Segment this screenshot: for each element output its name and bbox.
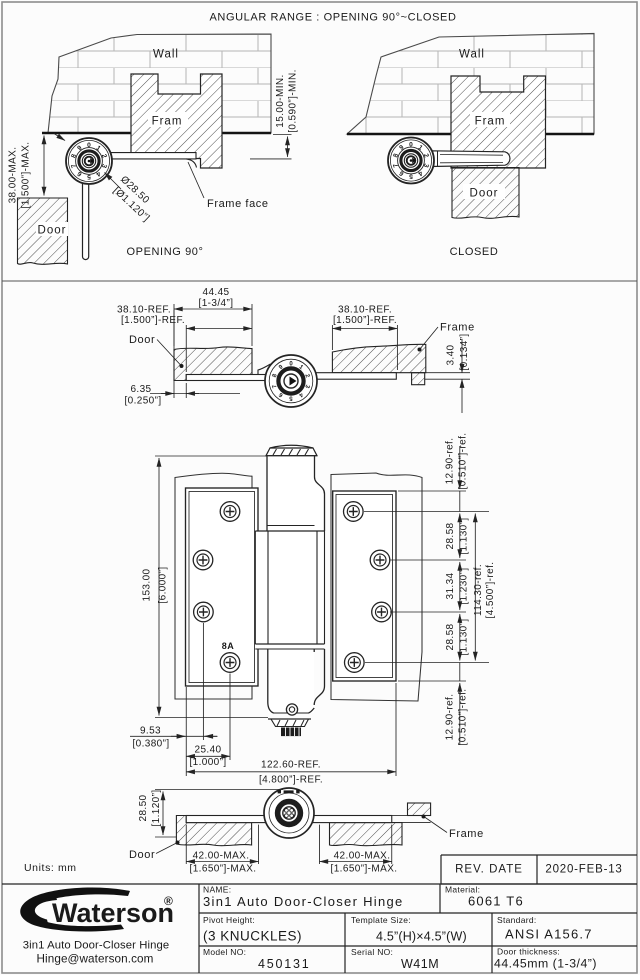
svg-text:42.00-MAX.: 42.00-MAX. bbox=[193, 851, 250, 862]
svg-text:[1.130”]: [1.130”] bbox=[459, 517, 470, 554]
svg-text:Frame face: Frame face bbox=[207, 198, 269, 210]
svg-text:(3 KNUCKLES): (3 KNUCKLES) bbox=[203, 929, 302, 944]
svg-text:CLOSED: CLOSED bbox=[450, 246, 499, 258]
svg-text:Units: mm: Units: mm bbox=[24, 862, 77, 874]
svg-text:44.45: 44.45 bbox=[202, 287, 229, 298]
svg-text:NAME:: NAME: bbox=[203, 885, 231, 895]
svg-text:[1.130”]: [1.130”] bbox=[459, 618, 470, 655]
svg-text:153.00: 153.00 bbox=[142, 568, 153, 601]
svg-text:W41M: W41M bbox=[401, 957, 439, 971]
svg-text:38.00-MAX.: 38.00-MAX. bbox=[8, 147, 19, 204]
svg-text:[4.500”]-ref.: [4.500”]-ref. bbox=[485, 562, 496, 619]
svg-text:15.00-MIN.: 15.00-MIN. bbox=[275, 74, 286, 127]
svg-text:28.58: 28.58 bbox=[445, 522, 456, 549]
svg-text:114.30-ref.: 114.30-ref. bbox=[473, 564, 484, 616]
svg-text:[6.000”]: [6.000”] bbox=[158, 566, 169, 603]
svg-text:6.35: 6.35 bbox=[130, 384, 151, 395]
svg-text:[0.134”]: [0.134”] bbox=[459, 333, 470, 370]
svg-text:122.60-REF.: 122.60-REF. bbox=[261, 760, 321, 771]
svg-text:8A: 8A bbox=[222, 641, 235, 651]
svg-text:Standard:: Standard: bbox=[497, 915, 537, 925]
svg-text:Waterson: Waterson bbox=[52, 898, 174, 928]
svg-text:Frame: Frame bbox=[449, 828, 484, 840]
svg-text:Pivot Height:: Pivot Height: bbox=[203, 915, 255, 925]
svg-text:[1.230”]: [1.230”] bbox=[459, 567, 470, 604]
svg-text:[0.590”]-MIN.: [0.590”]-MIN. bbox=[288, 69, 299, 133]
svg-text:[1.500”]-REF.: [1.500”]-REF. bbox=[333, 315, 397, 326]
svg-text:Template Size:: Template Size: bbox=[351, 915, 411, 925]
svg-text:4.5”(H)×4.5”(W): 4.5”(H)×4.5”(W) bbox=[376, 930, 467, 944]
svg-text:3.40: 3.40 bbox=[446, 344, 457, 365]
svg-text:[1.000”]: [1.000”] bbox=[189, 757, 226, 768]
svg-text:28.58: 28.58 bbox=[445, 623, 456, 650]
svg-text:Door: Door bbox=[470, 188, 499, 200]
svg-text:2020-FEB-13: 2020-FEB-13 bbox=[545, 864, 622, 876]
svg-text:Hinge@waterson.com: Hinge@waterson.com bbox=[37, 953, 154, 966]
svg-text:Wall: Wall bbox=[459, 49, 485, 61]
svg-text:Serial NO:: Serial NO: bbox=[351, 947, 393, 957]
svg-text:6061 T6: 6061 T6 bbox=[468, 894, 524, 909]
svg-text:25.40: 25.40 bbox=[194, 745, 221, 756]
svg-text:Fram: Fram bbox=[475, 116, 506, 128]
svg-text:28.50: 28.50 bbox=[138, 794, 149, 821]
svg-text:9.53: 9.53 bbox=[140, 726, 161, 737]
svg-text:[1.500”]-REF.: [1.500”]-REF. bbox=[121, 315, 185, 326]
svg-text:®: ® bbox=[164, 894, 173, 908]
svg-text:31.34: 31.34 bbox=[445, 572, 456, 599]
svg-text:[0.510”]-ref.: [0.510”]-ref. bbox=[458, 689, 469, 746]
svg-text:450131: 450131 bbox=[258, 957, 311, 971]
svg-text:[1.650”]-MAX.: [1.650”]-MAX. bbox=[331, 864, 398, 875]
svg-text:[1.650”]-MAX.: [1.650”]-MAX. bbox=[190, 864, 257, 875]
svg-text:3in1 Auto Door-Closer Hinge: 3in1 Auto Door-Closer Hinge bbox=[23, 940, 170, 952]
svg-text:[0.380”]: [0.380”] bbox=[132, 739, 169, 750]
svg-text:Door: Door bbox=[129, 849, 155, 861]
svg-text:ANSI A156.7: ANSI A156.7 bbox=[505, 927, 593, 942]
svg-text:38.10-REF.: 38.10-REF. bbox=[338, 305, 392, 316]
svg-text:[1.500”]-MAX.: [1.500”]-MAX. bbox=[21, 142, 32, 209]
svg-text:[0.510”]-ref.: [0.510”]-ref. bbox=[458, 433, 469, 490]
svg-text:12.90-ref.: 12.90-ref. bbox=[445, 694, 456, 741]
svg-text:Wall: Wall bbox=[153, 49, 179, 61]
svg-text:Fram: Fram bbox=[152, 116, 183, 128]
svg-text:REV. DATE: REV. DATE bbox=[455, 864, 523, 876]
svg-text:44.45mm (1-3/4”): 44.45mm (1-3/4”) bbox=[494, 957, 597, 971]
svg-text:38.10-REF.: 38.10-REF. bbox=[117, 305, 171, 316]
svg-text:[1-3/4”]: [1-3/4”] bbox=[199, 298, 234, 309]
svg-text:42.00-MAX.: 42.00-MAX. bbox=[334, 851, 391, 862]
svg-text:[0.250”]: [0.250”] bbox=[124, 396, 161, 407]
svg-text:ANGULAR RANGE : OPENING 90°~CL: ANGULAR RANGE : OPENING 90°~CLOSED bbox=[209, 12, 456, 24]
svg-text:OPENING 90°: OPENING 90° bbox=[126, 246, 203, 258]
svg-text:12.90-ref.: 12.90-ref. bbox=[445, 438, 456, 485]
svg-text:Door: Door bbox=[129, 334, 155, 346]
svg-text:Model NO:: Model NO: bbox=[203, 947, 246, 957]
svg-text:[4.800”]-REF.: [4.800”]-REF. bbox=[259, 775, 323, 786]
svg-text:[1.120”]: [1.120”] bbox=[151, 789, 162, 826]
svg-text:3in1 Auto Door-Closer Hinge: 3in1 Auto Door-Closer Hinge bbox=[203, 894, 404, 909]
svg-text:Door: Door bbox=[38, 225, 67, 237]
svg-text:Door thickness:: Door thickness: bbox=[497, 947, 560, 957]
svg-text:Frame: Frame bbox=[440, 322, 475, 334]
